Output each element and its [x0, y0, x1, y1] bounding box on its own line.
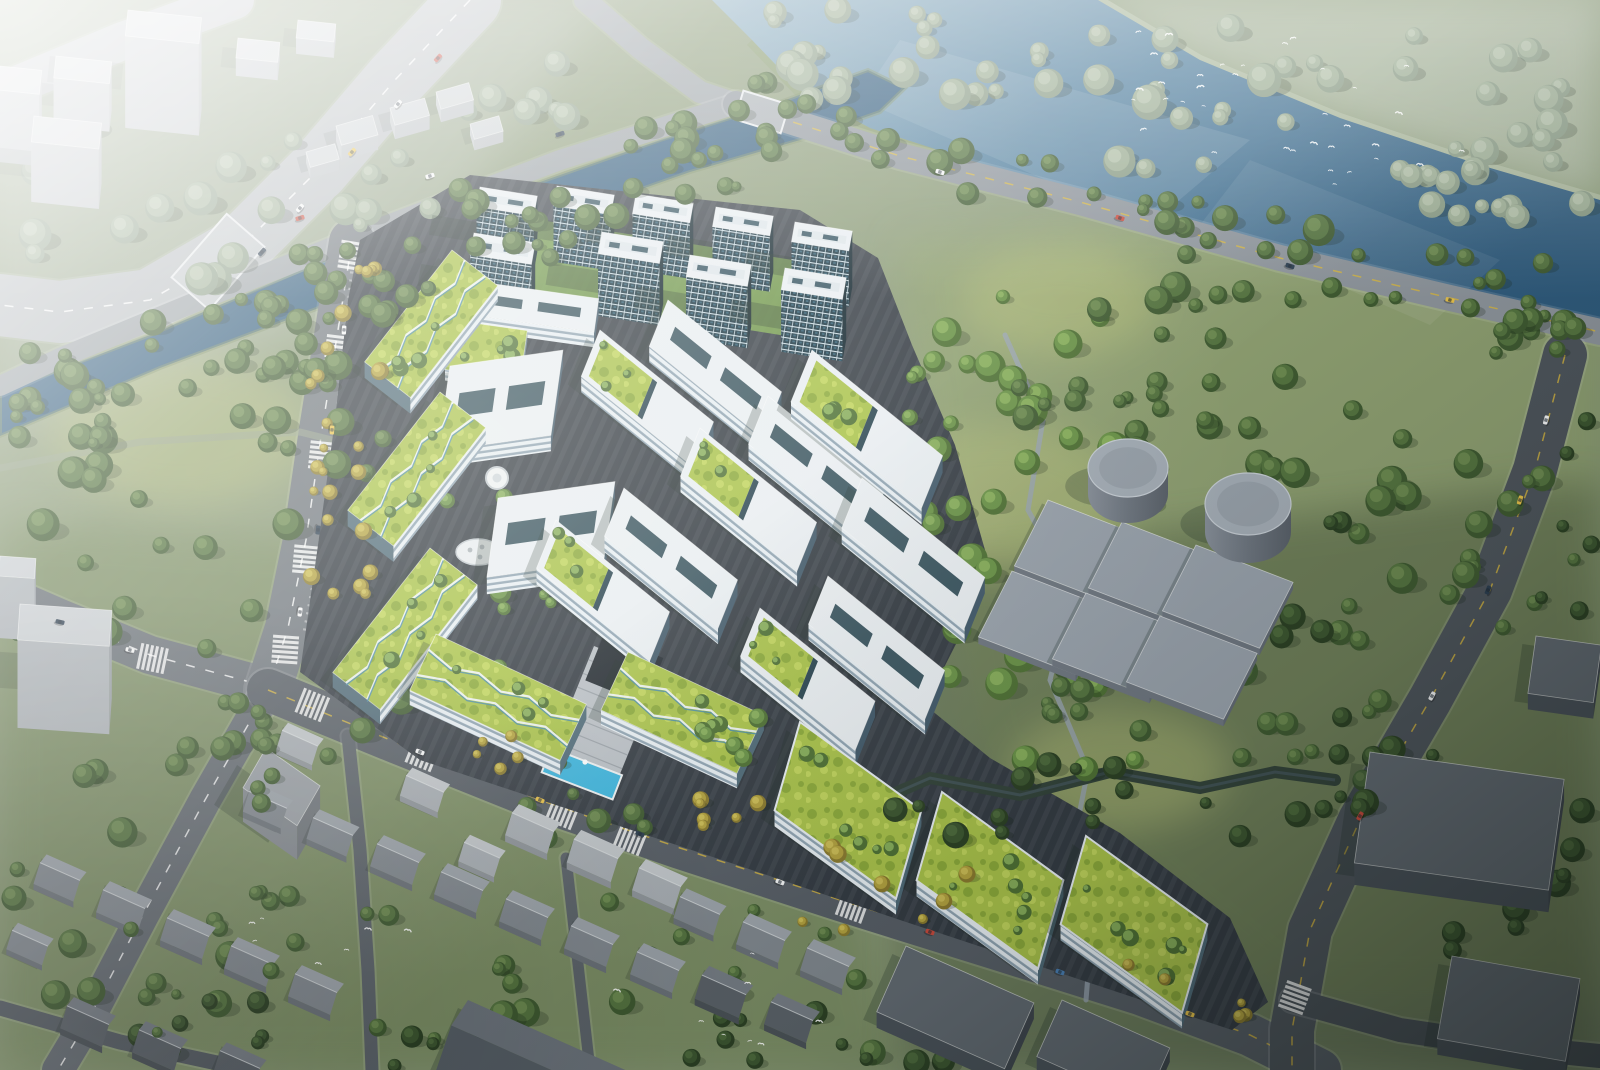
rendering-canvas [0, 0, 1600, 1070]
aerial-site-rendering [0, 0, 1600, 1070]
atmosphere [0, 0, 1600, 1070]
